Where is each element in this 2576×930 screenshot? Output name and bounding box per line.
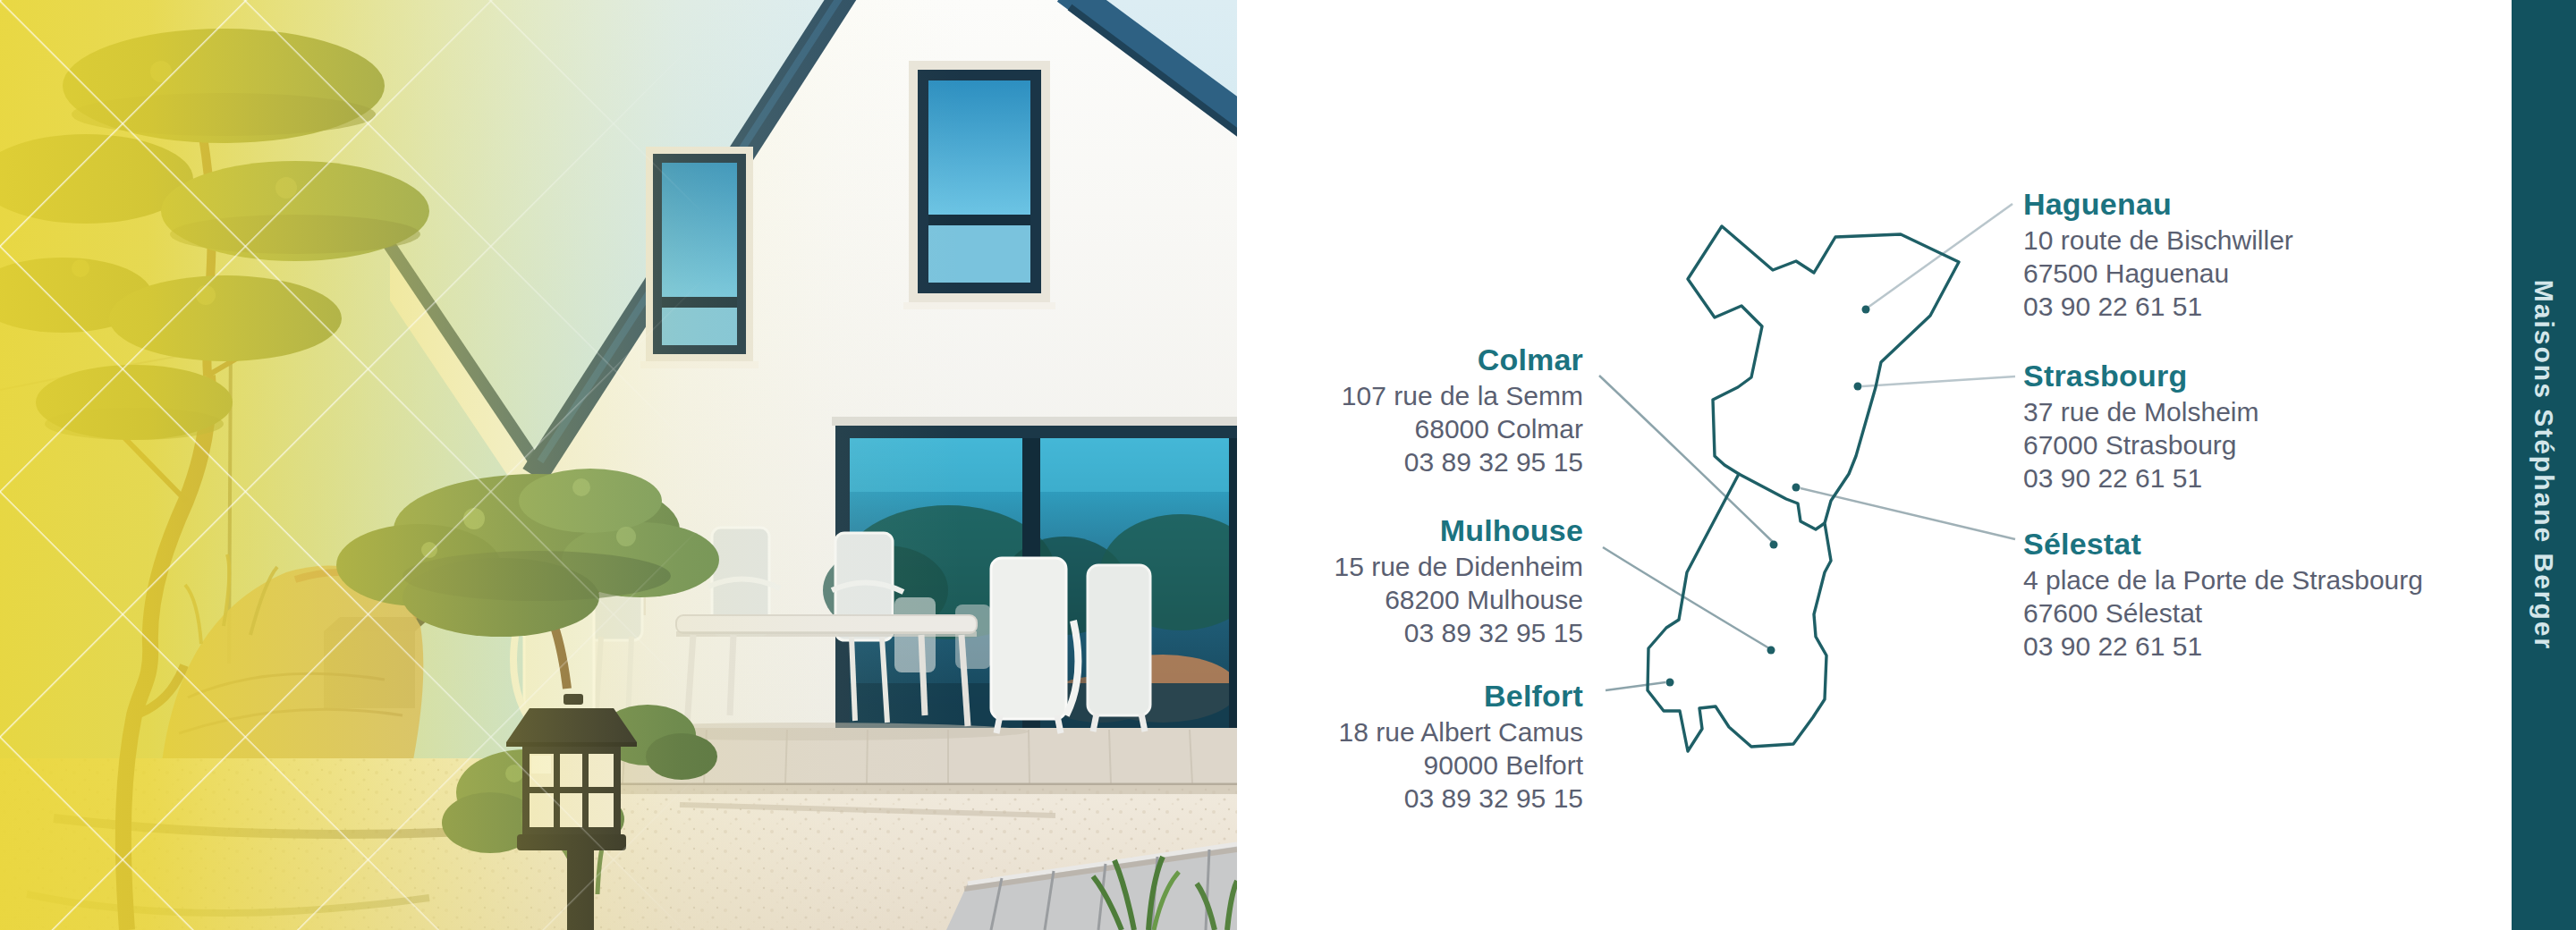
region-outline — [1648, 226, 1959, 751]
office-postal-city: 68200 Mulhouse — [1136, 583, 1583, 616]
connector-line-selestat — [1801, 488, 2015, 539]
map-marker-strasbourg — [1854, 383, 1862, 391]
office-phone: 03 90 22 61 51 — [2023, 630, 2470, 663]
office-postal-city: 67600 Sélestat — [2023, 596, 2470, 630]
office-card-strasbourg: Strasbourg 37 rue de Molsheim 67000 Stra… — [2023, 356, 2470, 495]
office-card-colmar: Colmar 107 rue de la Semm 68000 Colmar 0… — [1136, 340, 1583, 478]
connector-line-belfort — [1606, 682, 1665, 690]
house-photo-illustration — [0, 0, 1237, 930]
office-postal-city: 90000 Belfort — [1136, 748, 1583, 782]
office-city: Haguenau — [2023, 184, 2470, 224]
office-phone: 03 89 32 95 15 — [1136, 445, 1583, 478]
office-phone: 03 89 32 95 15 — [1136, 616, 1583, 649]
department-boundary — [1739, 474, 1825, 529]
map-marker-selestat — [1792, 484, 1801, 492]
connector-line-colmar — [1599, 376, 1774, 543]
connector-line-mulhouse — [1603, 547, 1769, 648]
office-city: Strasbourg — [2023, 356, 2470, 395]
office-city: Belfort — [1136, 676, 1583, 715]
office-address: 18 rue Albert Camus — [1136, 715, 1583, 748]
office-card-selestat: Sélestat 4 place de la Porte de Strasbou… — [2023, 524, 2470, 663]
map-marker-belfort — [1666, 679, 1674, 687]
connector-line-haguenau — [1868, 204, 2012, 308]
diamond-lattice-overlay — [0, 0, 787, 930]
office-card-mulhouse: Mulhouse 15 rue de Didenheim 68200 Mulho… — [1136, 511, 1583, 649]
office-postal-city: 67000 Strasbourg — [2023, 428, 2470, 461]
office-postal-city: 67500 Haguenau — [2023, 257, 2470, 290]
office-address: 10 route de Bischwiller — [2023, 224, 2470, 257]
office-address: 15 rue de Didenheim — [1136, 550, 1583, 583]
brochure-page: Haguenau 10 route de Bischwiller 67500 H… — [0, 0, 2576, 930]
office-phone: 03 89 32 95 15 — [1136, 782, 1583, 815]
office-card-haguenau: Haguenau 10 route de Bischwiller 67500 H… — [2023, 184, 2470, 323]
office-address: 37 rue de Molsheim — [2023, 395, 2470, 428]
map-marker-haguenau — [1862, 306, 1870, 314]
office-address: 107 rue de la Semm — [1136, 379, 1583, 412]
office-address: 4 place de la Porte de Strasbourg — [2023, 563, 2470, 596]
brand-name: Maisons Stéphane Berger — [2529, 280, 2559, 650]
house-photo — [0, 0, 1237, 930]
office-city: Colmar — [1136, 340, 1583, 379]
office-city: Sélestat — [2023, 524, 2470, 563]
office-phone: 03 90 22 61 51 — [2023, 461, 2470, 495]
office-postal-city: 68000 Colmar — [1136, 412, 1583, 445]
connector-line-strasbourg — [1862, 376, 2015, 386]
office-card-belfort: Belfort 18 rue Albert Camus 90000 Belfor… — [1136, 676, 1583, 815]
office-phone: 03 90 22 61 51 — [2023, 290, 2470, 323]
office-city: Mulhouse — [1136, 511, 1583, 550]
brand-sidebar: Maisons Stéphane Berger — [2512, 0, 2576, 930]
map-marker-mulhouse — [1767, 647, 1775, 655]
map-marker-colmar — [1770, 541, 1778, 549]
